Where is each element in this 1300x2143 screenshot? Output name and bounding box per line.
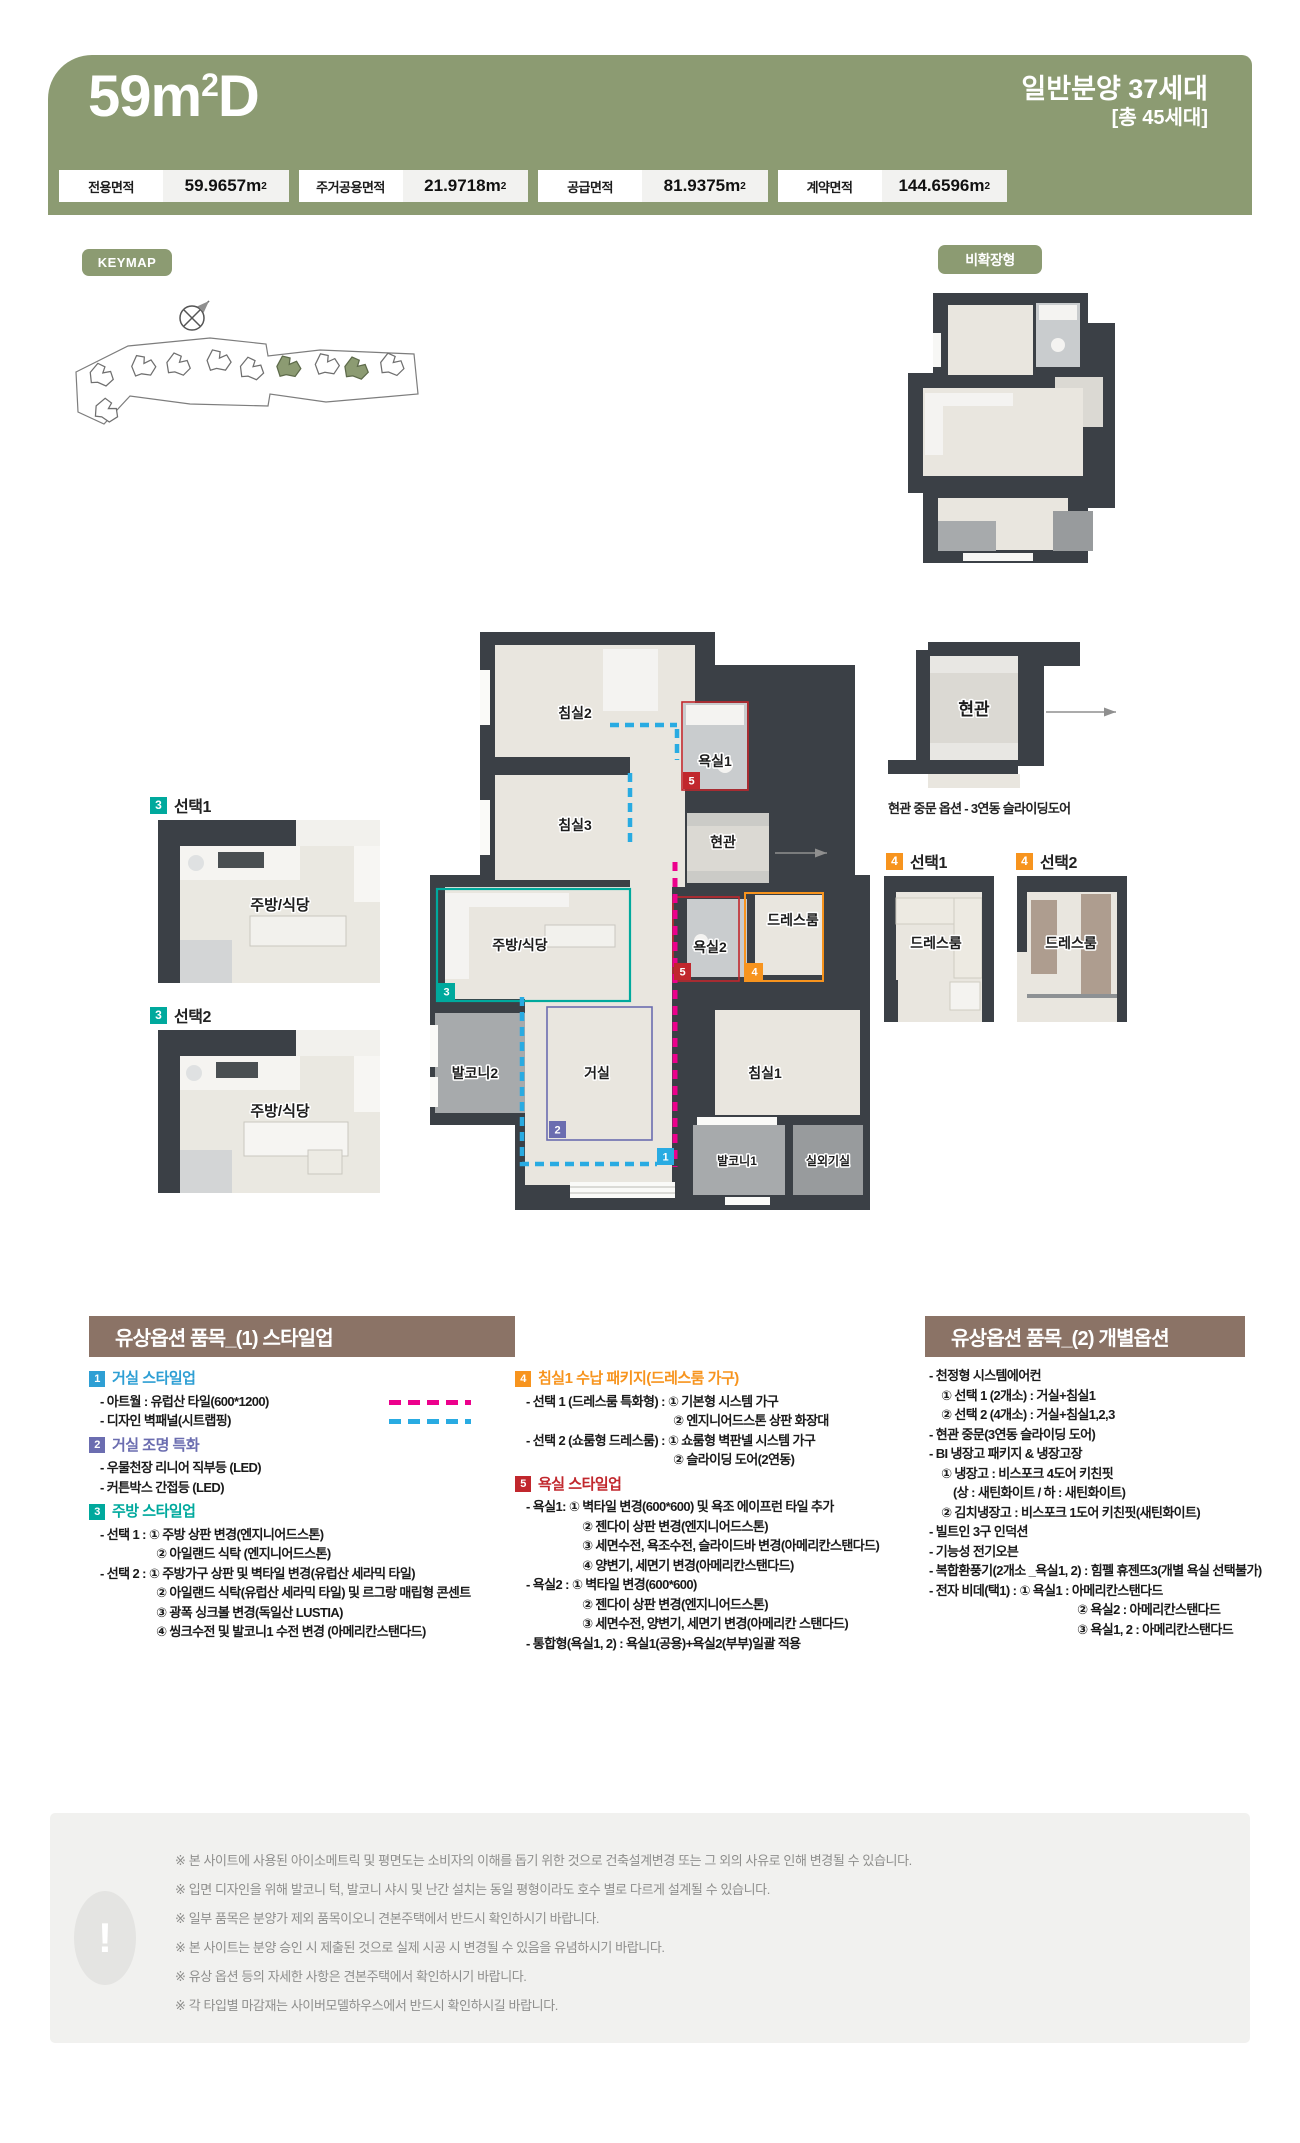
option-line: ② 젠다이 상판 변경(엔지니어드스톤) bbox=[515, 1595, 945, 1615]
group4-heading: 침실1 수납 패키지(드레스룸 가구) bbox=[538, 1369, 739, 1389]
option-line: - 복합환풍기(2개소 _욕실1, 2) : 힘펠 휴젠뜨3(개별 욕실 선택불… bbox=[925, 1561, 1297, 1581]
kitchen-image2-label: 주방/식당 bbox=[250, 1102, 310, 1120]
option-line: - 통합형(욕실1, 2) : 욕실1(공용)+욕실2(부부)일괄 적용 bbox=[515, 1634, 945, 1654]
marker-3: 3 bbox=[443, 987, 449, 999]
kitchen-option1-label: 3 선택1 bbox=[150, 793, 211, 817]
group1-badge: 1 bbox=[89, 1371, 105, 1387]
kitchen-option2-label: 3 선택2 bbox=[150, 1003, 211, 1027]
marker-5-bath2: 5 bbox=[679, 967, 685, 979]
option-line: ② 엔지니어드스톤 상판 화장대 bbox=[515, 1411, 945, 1431]
options2-column: - 천정형 시스템에어컨 ① 선택 1 (2개소) : 거실+침실1 ② 선택 … bbox=[925, 1366, 1297, 1639]
options1-title: 유상옵션 품목_(1) 스타일업 bbox=[89, 1316, 515, 1357]
options1-column1: 1거실 스타일업 - 아트월 : 유럽산 타일(600*1200) - 디자인 … bbox=[89, 1366, 529, 1647]
group5-heading: 욕실 스타일업 bbox=[538, 1475, 621, 1495]
option-line: ④ 씽크수전 및 발코니1 수전 변경 (아메리칸스탠다드) bbox=[89, 1622, 529, 1642]
room-label-entrance: 현관 bbox=[710, 834, 736, 850]
option-group-kitchen-styleup: 3주방 스타일업 - 선택 1 : ① 주방 상판 변경(엔지니어드스톤) ② … bbox=[89, 1502, 529, 1642]
area-label: 전용면적 bbox=[59, 170, 163, 202]
group2-badge: 2 bbox=[89, 1437, 105, 1453]
option-line: ② 욕실2 : 아메리칸스탠다드 bbox=[925, 1600, 1297, 1620]
area-cell-contract: 계약면적 144.6596m2 bbox=[778, 170, 1008, 202]
dress-option-marker: 4 bbox=[886, 853, 903, 870]
marker-1: 1 bbox=[662, 1152, 668, 1164]
disclaimer-line: ※ 유상 옵션 등의 자세한 사항은 견본주택에서 확인하시기 바랍니다. bbox=[175, 1962, 1235, 1991]
option-line: - BI 냉장고 패키지 & 냉장고장 bbox=[925, 1444, 1297, 1464]
kitchen-option-marker: 3 bbox=[150, 1007, 167, 1024]
kitchen-option2-text: 선택2 bbox=[174, 1003, 211, 1027]
option-line: - 기능성 전기오븐 bbox=[925, 1542, 1297, 1562]
option-line: ③ 세면수전, 욕조수전, 슬라이드바 변경(아메리칸스탠다드) bbox=[515, 1536, 945, 1556]
area-cell-exclusive: 전용면적 59.9657m2 bbox=[59, 170, 289, 202]
dress-option-marker: 4 bbox=[1016, 853, 1033, 870]
exclamation-icon: ! bbox=[74, 1891, 136, 1985]
option-line: - 선택 2 (쇼룸형 드레스룸) : ① 쇼룸형 벽판넬 시스템 가구 bbox=[515, 1431, 945, 1451]
compass-icon bbox=[180, 301, 209, 330]
option-line: - 현관 중문(3연동 슬라이딩 도어) bbox=[925, 1425, 1297, 1445]
option-line: - 선택 1 : ① 주방 상판 변경(엔지니어드스톤) bbox=[89, 1525, 529, 1545]
disclaimer-line: ※ 본 사이트에 사용된 아이소메트릭 및 평면도는 소비자의 이해를 돕기 위… bbox=[175, 1846, 1235, 1875]
dress-option2-label: 4 선택2 bbox=[1016, 849, 1077, 873]
dressroom-option2-image: 드레스룸 bbox=[1017, 876, 1127, 1022]
option-line: - 디자인 벽패널(시트랩핑) bbox=[89, 1411, 529, 1431]
area-cell-common: 주거공용면적 21.9718m2 bbox=[299, 170, 529, 202]
option-line: - 천정형 시스템에어컨 bbox=[925, 1366, 1297, 1386]
disclaimer-line: ※ 입면 디자인을 위해 발코니 턱, 발코니 샤시 및 난간 설치는 동일 평… bbox=[175, 1875, 1235, 1904]
dress-option2-text: 선택2 bbox=[1040, 849, 1077, 873]
area-value: 81.9375m2 bbox=[642, 170, 768, 202]
option-line: ③ 욕실1, 2 : 아메리칸스탠다드 bbox=[925, 1620, 1297, 1640]
option-line: - 우물천장 리니어 직부등 (LED) bbox=[89, 1458, 529, 1478]
room-label-bedroom3: 침실3 bbox=[558, 817, 592, 833]
unit-count: 일반분양 37세대 [총 45세대] bbox=[1021, 73, 1208, 131]
option-line: - 커튼박스 간접등 (LED) bbox=[89, 1478, 529, 1498]
marker-2: 2 bbox=[554, 1125, 560, 1137]
option-line: - 선택 1 (드레스룸 특화형) : ① 기본형 시스템 가구 bbox=[515, 1392, 945, 1412]
room-label-bedroom1: 침실1 bbox=[748, 1065, 782, 1081]
entrance-option-caption: 현관 중문 옵션 - 3연동 슬라이딩도어 bbox=[888, 798, 1070, 817]
option-line: ③ 광폭 싱크볼 변경(독일산 LUSTIA) bbox=[89, 1603, 529, 1623]
kitchen-option-marker: 3 bbox=[150, 797, 167, 814]
room-label-balcony1: 발코니1 bbox=[717, 1153, 757, 1168]
entrance-image-label: 현관 bbox=[958, 700, 990, 719]
group3-badge: 3 bbox=[89, 1504, 105, 1520]
unit-count-line1: 일반분양 37세대 bbox=[1021, 73, 1208, 105]
option-line: ② 아일랜드 식탁(유럽산 세라믹 타일) 및 르그랑 매립형 콘센트 bbox=[89, 1583, 529, 1603]
room-label-kitchen: 주방/식당 bbox=[492, 937, 548, 953]
area-value: 59.9657m2 bbox=[163, 170, 289, 202]
option-line: ③ 세면수전, 양변기, 세면기 변경(아메리칸 스탠다드) bbox=[515, 1614, 945, 1634]
options2-title: 유상옵션 품목_(2) 개별옵션 bbox=[925, 1316, 1245, 1357]
disclaimer-line: ※ 본 사이트는 분양 승인 시 제출된 것으로 실제 시공 시 변경될 수 있… bbox=[175, 1933, 1235, 1962]
group5-badge: 5 bbox=[515, 1476, 531, 1492]
room-label-balcony2: 발코니2 bbox=[452, 1065, 499, 1081]
non-extended-badge: 비확장형 bbox=[938, 245, 1042, 274]
option-line: ④ 양변기, 세면기 변경(아메리칸스탠다드) bbox=[515, 1556, 945, 1576]
entrance-detail-image: 현관 bbox=[888, 642, 1138, 792]
room-label-outdoor: 실외기실 bbox=[806, 1153, 850, 1168]
option-line: ① 냉장고 : 비스포크 4도어 키친핏 bbox=[925, 1464, 1297, 1484]
room-label-bath1: 욕실1 bbox=[698, 753, 732, 769]
area-label: 공급면적 bbox=[538, 170, 642, 202]
kitchen-image1-label: 주방/식당 bbox=[250, 896, 310, 914]
options1-column2: 4침실1 수납 패키지(드레스룸 가구) - 선택 1 (드레스룸 특화형) :… bbox=[515, 1366, 945, 1658]
option-line: ② 선택 2 (4개소) : 거실+침실1,2,3 bbox=[925, 1405, 1297, 1425]
main-floorplan: 1 2 3 4 5 5 침실2 욕실1 침실3 현관 주방/식당 욕실2 드레스… bbox=[425, 625, 880, 1213]
room-label-bedroom2: 침실2 bbox=[558, 705, 592, 721]
keymap-badge: KEYMAP bbox=[82, 249, 172, 276]
brochure-page: 59m2D 일반분양 37세대 [총 45세대] 전용면적 59.9657m2 … bbox=[0, 0, 1300, 2143]
unit-count-line2: [총 45세대] bbox=[1021, 105, 1208, 131]
option-group-bedroom1-storage: 4침실1 수납 패키지(드레스룸 가구) - 선택 1 (드레스룸 특화형) :… bbox=[515, 1369, 945, 1470]
room-label-living: 거실 bbox=[584, 1065, 610, 1081]
keymap-site-plan bbox=[70, 298, 436, 440]
dressroom-image2-label: 드레스룸 bbox=[1045, 935, 1097, 951]
site-boundary bbox=[76, 338, 418, 424]
option-group-living-styleup: 1거실 스타일업 - 아트월 : 유럽산 타일(600*1200) - 디자인 … bbox=[89, 1369, 529, 1431]
option-line: ② 아일랜드 식탁 (엔지니어드스톤) bbox=[89, 1544, 529, 1564]
magenta-dash-swatch bbox=[389, 1400, 471, 1405]
group2-heading: 거실 조명 특화 bbox=[112, 1436, 199, 1456]
option-line: (상 : 새틴화이트 / 하 : 새틴화이트) bbox=[925, 1483, 1297, 1503]
kitchen-option1-image: 주방/식당 bbox=[158, 820, 380, 983]
dress-option1-text: 선택1 bbox=[910, 849, 947, 873]
option-line: ② 젠다이 상판 변경(엔지니어드스톤) bbox=[515, 1517, 945, 1537]
marker-4: 4 bbox=[751, 967, 758, 979]
dressroom-option1-image: 드레스룸 bbox=[884, 876, 994, 1022]
option-line: - 욕실1: ① 벽타일 변경(600*600) 및 욕조 에이프런 타일 추가 bbox=[515, 1497, 945, 1517]
option-line: - 선택 2 : ① 주방가구 상판 및 벽타일 변경(유럽산 세라믹 타일) bbox=[89, 1564, 529, 1584]
kitchen-option1-text: 선택1 bbox=[174, 793, 211, 817]
option-line: - 빌트인 3구 인덕션 bbox=[925, 1522, 1297, 1542]
group3-heading: 주방 스타일업 bbox=[112, 1502, 195, 1522]
area-spec-strip: 전용면적 59.9657m2 주거공용면적 21.9718m2 공급면적 81.… bbox=[59, 170, 1007, 202]
dressroom-image1-label: 드레스룸 bbox=[910, 935, 962, 951]
option-group-living-lighting: 2거실 조명 특화 - 우물천장 리니어 직부등 (LED) - 커튼박스 간접… bbox=[89, 1436, 529, 1498]
dress-option1-label: 4 선택1 bbox=[886, 849, 947, 873]
disclaimer-line: ※ 일부 품목은 분양가 제외 품목이오니 견본주택에서 반드시 확인하시기 바… bbox=[175, 1904, 1235, 1933]
disclaimer-line: ※ 각 타입별 마감재는 사이버모델하우스에서 반드시 확인하시길 바랍니다. bbox=[175, 1991, 1235, 2020]
area-label: 계약면적 bbox=[778, 170, 882, 202]
option-line: ① 선택 1 (2개소) : 거실+침실1 bbox=[925, 1386, 1297, 1406]
option-line: - 전자 비데(택1) : ① 욕실1 : 아메리칸스탠다드 bbox=[925, 1581, 1297, 1601]
marker-5-bath1: 5 bbox=[688, 776, 694, 788]
kitchen-option2-image: 주방/식당 bbox=[158, 1030, 380, 1193]
option-line: - 아트월 : 유럽산 타일(600*1200) bbox=[89, 1392, 529, 1412]
non-extended-floorplan-image bbox=[903, 293, 1115, 567]
room-label-bath2: 욕실2 bbox=[693, 939, 727, 955]
unit-type-title: 59m2D bbox=[88, 63, 259, 130]
area-value: 21.9718m2 bbox=[403, 170, 529, 202]
option-group-bath-styleup: 5욕실 스타일업 - 욕실1: ① 벽타일 변경(600*600) 및 욕조 에… bbox=[515, 1475, 945, 1654]
blue-dash-swatch bbox=[389, 1419, 471, 1424]
area-cell-supply: 공급면적 81.9375m2 bbox=[538, 170, 768, 202]
group1-heading: 거실 스타일업 bbox=[112, 1369, 195, 1389]
disclaimer-lines: ※ 본 사이트에 사용된 아이소메트릭 및 평면도는 소비자의 이해를 돕기 위… bbox=[175, 1846, 1235, 2020]
area-label: 주거공용면적 bbox=[299, 170, 403, 202]
group4-badge: 4 bbox=[515, 1371, 531, 1387]
room-label-dressroom: 드레스룸 bbox=[767, 912, 819, 928]
area-value: 144.6596m2 bbox=[882, 170, 1008, 202]
option-line: ② 김치냉장고 : 비스포크 1도어 키친핏(새틴화이트) bbox=[925, 1503, 1297, 1523]
option-line: - 욕실2 : ① 벽타일 변경(600*600) bbox=[515, 1575, 945, 1595]
option-line: ② 슬라이딩 도어(2연동) bbox=[515, 1450, 945, 1470]
